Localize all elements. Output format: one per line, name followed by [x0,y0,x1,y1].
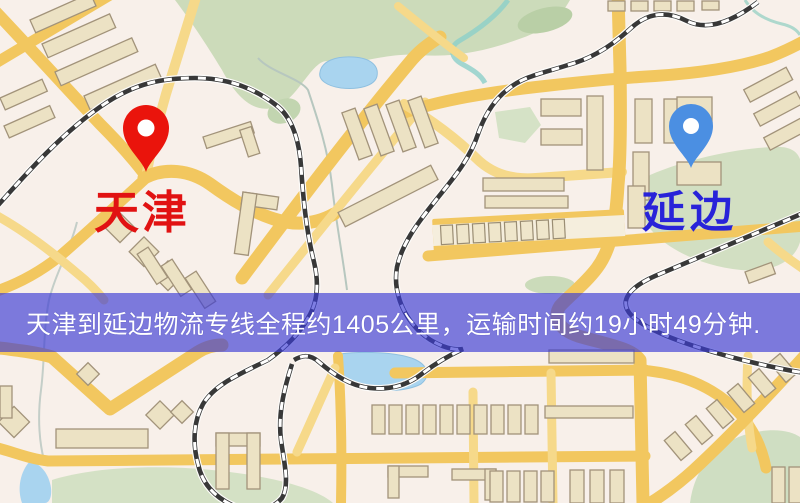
map-container[interactable]: 天津 延边 天津到延边物流专线全程约1405公里，运输时间约19小时49分钟. [0,0,800,503]
route-info-text: 天津到延边物流专线全程约1405公里，运输时间约19小时49分钟. [0,305,761,341]
route-info-banner: 天津到延边物流专线全程约1405公里，运输时间约19小时49分钟. [0,293,800,352]
map-image[interactable] [0,0,800,503]
destination-city-label: 延边 [642,178,738,240]
origin-city-label: 天津 [94,176,190,241]
